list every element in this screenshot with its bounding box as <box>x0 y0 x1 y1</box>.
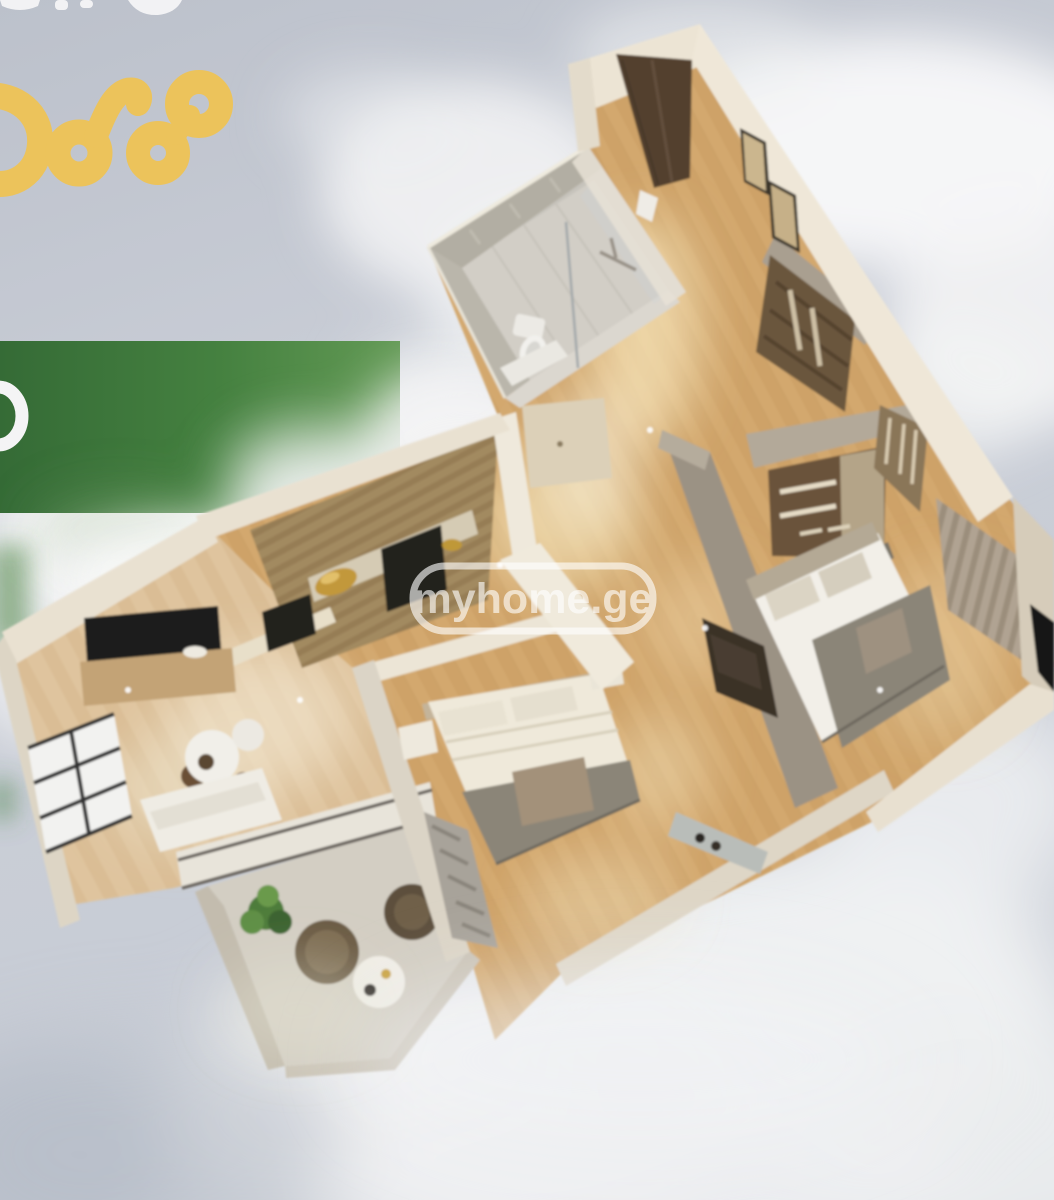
svg-text:myhome.ge: myhome.ge <box>414 575 653 623</box>
